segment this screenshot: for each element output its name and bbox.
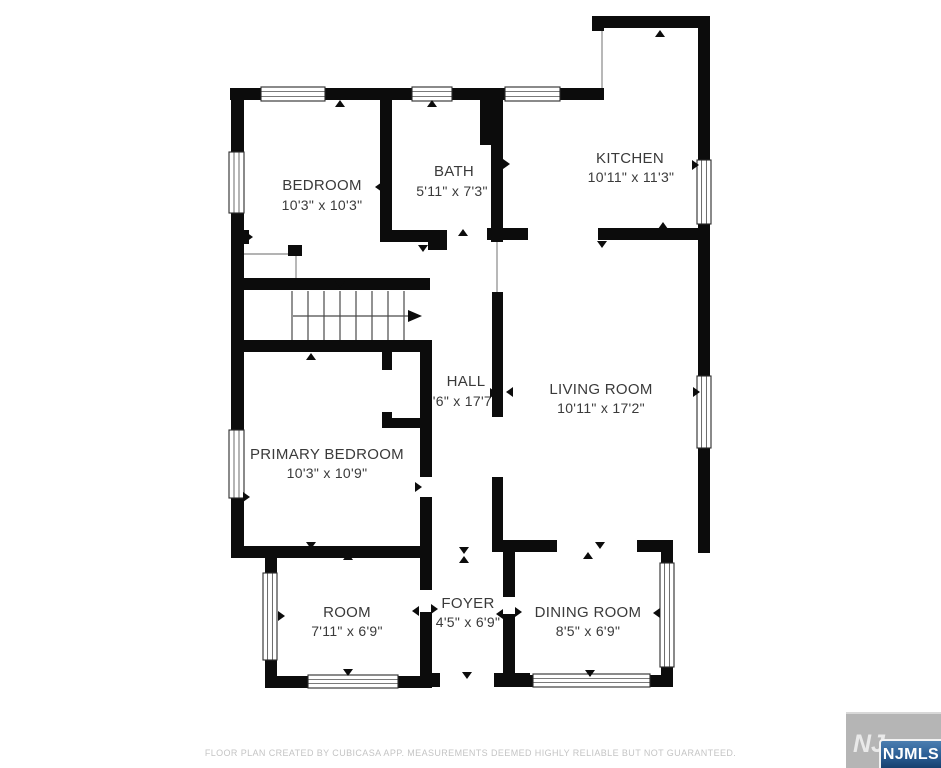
room-labels: BEDROOM 10'3" x 10'3" BATH 5'11" x 7'3" … [250, 150, 674, 639]
room-label-primary-dims: 10'3" x 10'9" [287, 465, 368, 481]
disclaimer-text: FLOOR PLAN CREATED BY CUBICASA APP. MEAS… [0, 748, 941, 758]
room-label-hall-dims: 3'6" x 17'7" [425, 393, 498, 409]
room-label-dining-name: DINING ROOM [535, 604, 642, 621]
room-label-kitchen-name: KITCHEN [596, 150, 664, 167]
stairs-direction-arrow [408, 310, 422, 322]
room-label-hall-name: HALL [447, 373, 486, 390]
floor-plan-page: BEDROOM 10'3" x 10'3" BATH 5'11" x 7'3" … [0, 0, 941, 768]
room-label-foyer-name: FOYER [441, 595, 494, 612]
floor-plan-canvas: BEDROOM 10'3" x 10'3" BATH 5'11" x 7'3" … [0, 0, 941, 768]
room-label-room-name: ROOM [323, 604, 371, 621]
room-label-kitchen-dims: 10'11" x 11'3" [588, 169, 675, 185]
room-label-bedroom-name: BEDROOM [282, 177, 362, 194]
door-ticks [243, 30, 700, 679]
walls [230, 16, 710, 688]
room-label-dining-dims: 8'5" x 6'9" [556, 623, 621, 639]
room-label-bedroom-dims: 10'3" x 10'3" [282, 197, 363, 213]
room-label-living-dims: 10'11" x 17'2" [557, 400, 645, 416]
njmls-logo-text: NJMLS [883, 746, 939, 764]
room-label-room-dims: 7'11" x 6'9" [311, 623, 383, 639]
staircase [292, 291, 422, 340]
room-label-bath-dims: 5'11" x 7'3" [416, 183, 488, 199]
room-label-primary-name: PRIMARY BEDROOM [250, 446, 404, 463]
room-label-foyer-dims: 4'5" x 6'9" [436, 614, 501, 630]
room-label-living-name: LIVING ROOM [549, 381, 652, 398]
njmls-logo: NJMLS [879, 739, 941, 768]
room-label-bath-name: BATH [434, 163, 474, 180]
